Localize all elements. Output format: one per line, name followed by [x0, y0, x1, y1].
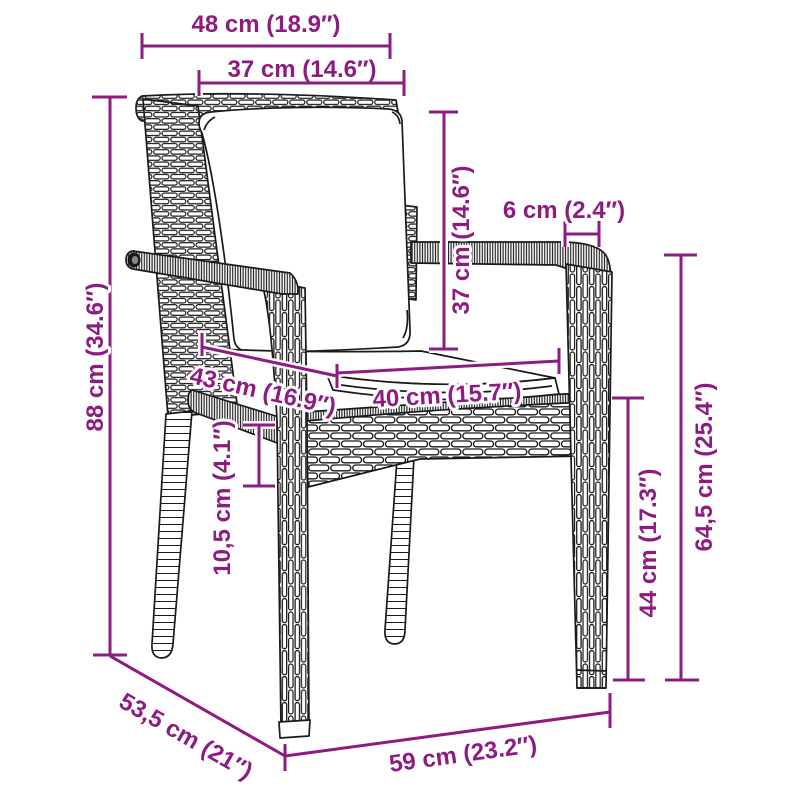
svg-text:48 cm (18.9″): 48 cm (18.9″) [192, 11, 341, 38]
svg-text:37 cm (14.6″): 37 cm (14.6″) [228, 56, 377, 83]
svg-text:10,5 cm (4.1″): 10,5 cm (4.1″) [209, 420, 236, 576]
svg-text:6 cm (2.4″): 6 cm (2.4″) [503, 197, 625, 224]
svg-text:37 cm (14.6″): 37 cm (14.6″) [448, 166, 475, 315]
svg-text:64,5 cm (25.4″): 64,5 cm (25.4″) [691, 383, 718, 552]
svg-text:44 cm (17.3″): 44 cm (17.3″) [635, 469, 662, 618]
svg-text:88 cm (34.6″): 88 cm (34.6″) [82, 283, 109, 432]
